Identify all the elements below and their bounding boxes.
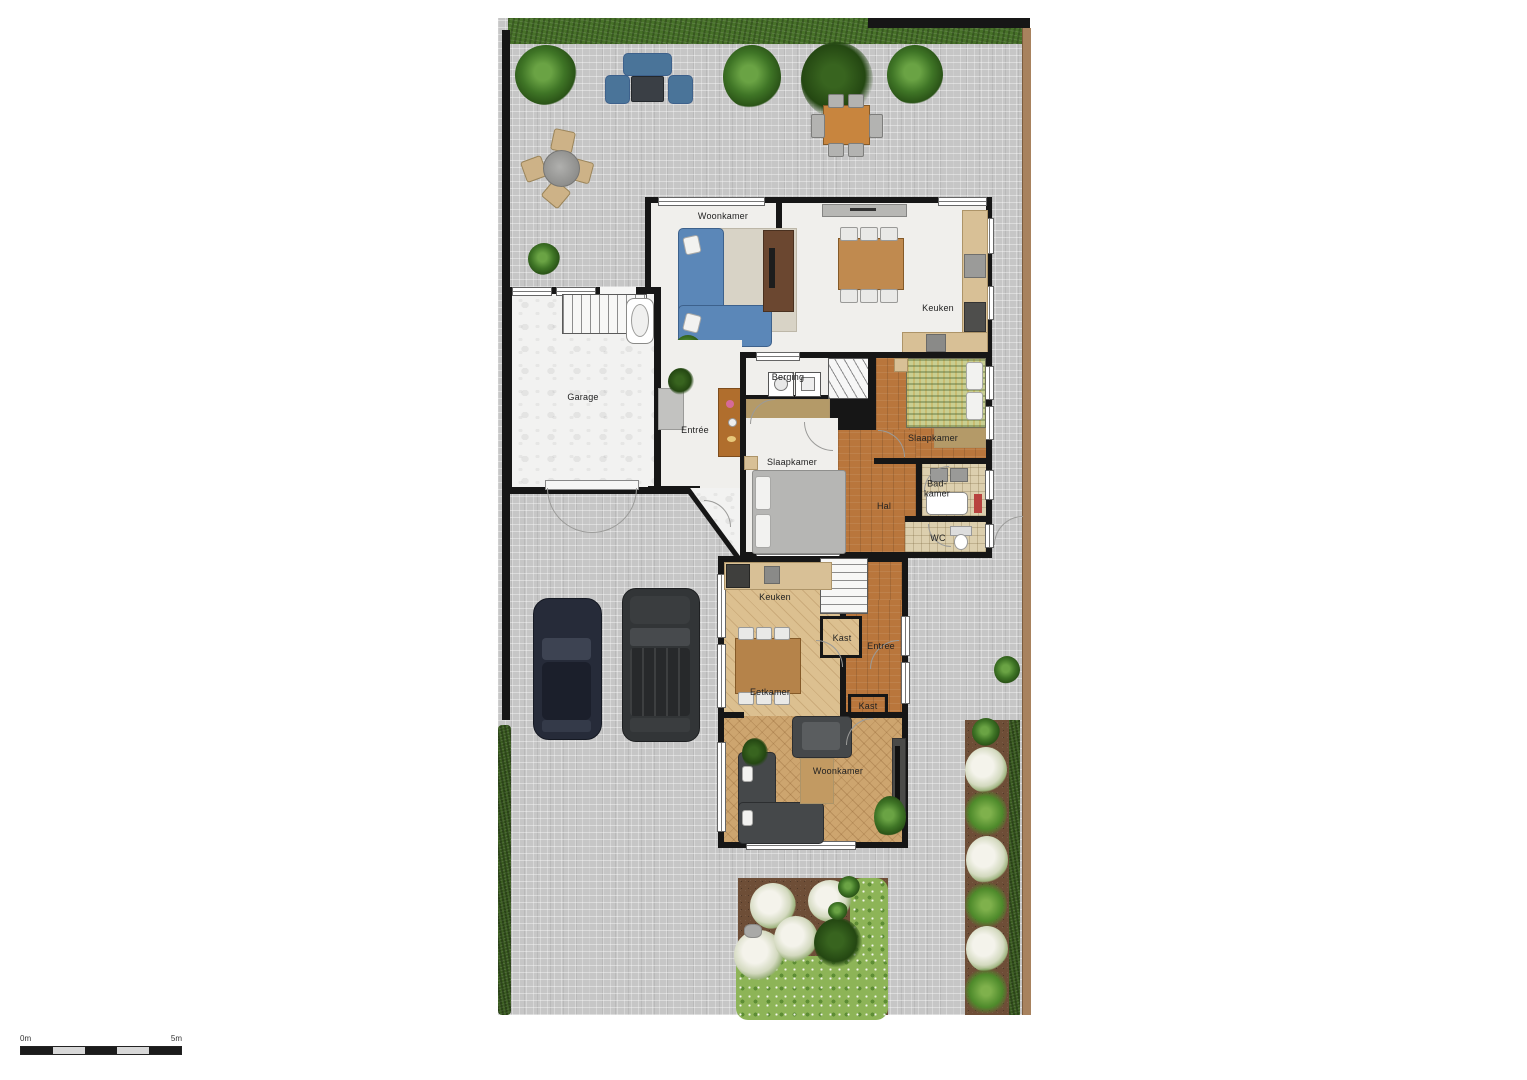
boundary-wall-top-right bbox=[868, 18, 1030, 28]
room-label-hal: Hal bbox=[877, 501, 891, 511]
bush-icon bbox=[994, 656, 1020, 684]
rock-icon bbox=[744, 924, 762, 938]
bath-mat bbox=[974, 494, 982, 513]
garden-chair bbox=[848, 94, 864, 108]
berry-bush-icon bbox=[814, 918, 862, 968]
chair bbox=[880, 227, 898, 241]
scale-bar: 0m 5m bbox=[18, 1034, 182, 1060]
floorplan-canvas: Woonkamer Keuken Garage Entrée Berging S… bbox=[0, 0, 1527, 1080]
houseplant-icon bbox=[742, 738, 768, 768]
room-label-woonkamer-upper: Woonkamer bbox=[698, 211, 748, 221]
window bbox=[938, 197, 987, 206]
houseplant-icon bbox=[874, 796, 906, 838]
grass-plant-icon bbox=[965, 788, 1007, 838]
pillow bbox=[755, 476, 771, 510]
window bbox=[512, 287, 552, 296]
grass-plant-icon bbox=[965, 880, 1007, 930]
nightstand bbox=[744, 456, 758, 470]
garage-side-door-opening bbox=[600, 287, 636, 294]
car-windshield bbox=[542, 638, 591, 660]
stove-icon bbox=[964, 302, 986, 332]
bush-icon bbox=[972, 718, 1000, 746]
chair bbox=[880, 289, 898, 303]
window bbox=[756, 352, 800, 361]
garden-chair bbox=[869, 114, 883, 138]
palm-plant-icon bbox=[515, 45, 577, 105]
decor-dot bbox=[728, 418, 737, 427]
bush-icon bbox=[828, 902, 848, 920]
door-swing-arc bbox=[592, 488, 637, 533]
room-label-entree-lower: Entree bbox=[867, 641, 895, 651]
chair bbox=[860, 289, 878, 303]
tv-icon bbox=[895, 746, 900, 804]
scale-segment bbox=[117, 1047, 149, 1054]
chair bbox=[738, 627, 754, 640]
room-label-slaapkamer-right: Slaapkamer bbox=[908, 433, 958, 443]
pillow bbox=[966, 362, 983, 390]
car-rear bbox=[630, 718, 690, 732]
room-label-kast-lower: Kast bbox=[859, 701, 878, 711]
window bbox=[717, 644, 726, 708]
room-label-eetkamer: Eetkamer bbox=[750, 687, 790, 697]
houseplant-icon bbox=[668, 368, 694, 395]
patio-round-table bbox=[543, 150, 580, 187]
scale-segment bbox=[53, 1047, 85, 1054]
room-label-keuken-lower: Keuken bbox=[759, 592, 791, 602]
hedge-right bbox=[1009, 720, 1020, 1015]
tv-icon bbox=[769, 248, 775, 288]
window bbox=[901, 662, 910, 704]
car-roof bbox=[542, 662, 591, 720]
flower-shrub-icon bbox=[965, 747, 1007, 793]
scale-segment bbox=[149, 1047, 181, 1054]
chair bbox=[774, 627, 790, 640]
room-label-entree-upper: Entrée bbox=[681, 425, 709, 435]
nightstand bbox=[894, 358, 908, 372]
door-swing-arc bbox=[994, 516, 1023, 545]
oven-icon bbox=[726, 564, 750, 588]
garden-chair bbox=[848, 143, 864, 157]
tv-icon bbox=[850, 208, 876, 211]
scale-segment bbox=[85, 1047, 117, 1054]
flower-shrub-icon bbox=[966, 836, 1008, 884]
window bbox=[658, 197, 765, 206]
palm-plant-icon bbox=[887, 45, 943, 105]
wall-stub bbox=[724, 712, 744, 718]
room-label-kast-upper: Kast bbox=[833, 633, 852, 643]
room-label-wc: WC bbox=[930, 533, 945, 543]
grass-plant-icon bbox=[965, 966, 1007, 1016]
garden-chair bbox=[828, 143, 844, 157]
room-label-berging: Berging bbox=[772, 372, 804, 382]
scale-start-label: 0m bbox=[20, 1034, 31, 1043]
appliance-icon bbox=[764, 566, 780, 584]
window bbox=[985, 524, 994, 548]
window bbox=[985, 366, 994, 400]
window bbox=[901, 616, 910, 656]
lounge-chair-left bbox=[605, 75, 630, 104]
badkamer-line1: Bad- bbox=[924, 479, 950, 489]
border-strip-right bbox=[1022, 28, 1031, 1015]
room-label-badkamer: Bad-kamer bbox=[924, 479, 950, 500]
scale-end-label: 5m bbox=[171, 1034, 182, 1043]
window bbox=[717, 742, 726, 832]
toilet-bowl bbox=[954, 534, 968, 550]
hedge-left bbox=[498, 725, 511, 1015]
scale-segment bbox=[21, 1047, 53, 1054]
lounge-sofa bbox=[623, 53, 672, 76]
sink-icon bbox=[964, 254, 986, 278]
pillow bbox=[682, 235, 701, 256]
palm-plant-icon bbox=[723, 45, 781, 109]
pillow bbox=[742, 810, 753, 826]
bush-icon bbox=[528, 243, 560, 275]
room-label-slaapkamer-left: Slaapkamer bbox=[767, 457, 817, 467]
pillow bbox=[755, 514, 771, 548]
chair bbox=[860, 227, 878, 241]
vanity-sink-icon bbox=[950, 468, 968, 482]
badkamer-line2: kamer bbox=[924, 489, 950, 499]
lounge-table bbox=[631, 76, 664, 102]
appliance-icon bbox=[926, 334, 946, 352]
scale-bar-track bbox=[20, 1046, 182, 1055]
dining-table bbox=[838, 238, 904, 290]
car-windshield bbox=[630, 628, 690, 646]
decor-bowl bbox=[727, 436, 736, 442]
car-rear-window bbox=[542, 720, 591, 732]
room-label-woonkamer-lower: Woonkamer bbox=[813, 766, 863, 776]
chair bbox=[840, 227, 858, 241]
car-hood bbox=[630, 596, 690, 624]
pillow bbox=[742, 766, 753, 782]
room-label-keuken-upper: Keuken bbox=[922, 303, 954, 313]
car-roof bbox=[630, 648, 690, 716]
chair bbox=[840, 289, 858, 303]
cabinet bbox=[763, 230, 794, 312]
window bbox=[985, 406, 994, 440]
door-swing-arc bbox=[547, 488, 592, 533]
flower-shrub-icon bbox=[774, 916, 818, 962]
entree-lower-floor bbox=[868, 562, 902, 600]
dining-table bbox=[735, 638, 801, 694]
armchair-seat bbox=[802, 722, 840, 750]
plot-paving: Woonkamer Keuken Garage Entrée Berging S… bbox=[498, 18, 1030, 1015]
lounge-chair-right bbox=[668, 75, 693, 104]
wall-stub bbox=[916, 464, 922, 516]
decor-dot bbox=[726, 400, 734, 408]
pillow bbox=[966, 392, 983, 420]
bathtub-basin bbox=[631, 304, 649, 337]
garden-dining-table bbox=[823, 105, 870, 145]
wall-stub bbox=[868, 352, 876, 436]
window bbox=[985, 470, 994, 500]
room-label-garage: Garage bbox=[567, 392, 598, 402]
garden-chair bbox=[828, 94, 844, 108]
garden-chair bbox=[811, 114, 825, 138]
bush-icon bbox=[838, 876, 860, 898]
chair bbox=[756, 627, 772, 640]
